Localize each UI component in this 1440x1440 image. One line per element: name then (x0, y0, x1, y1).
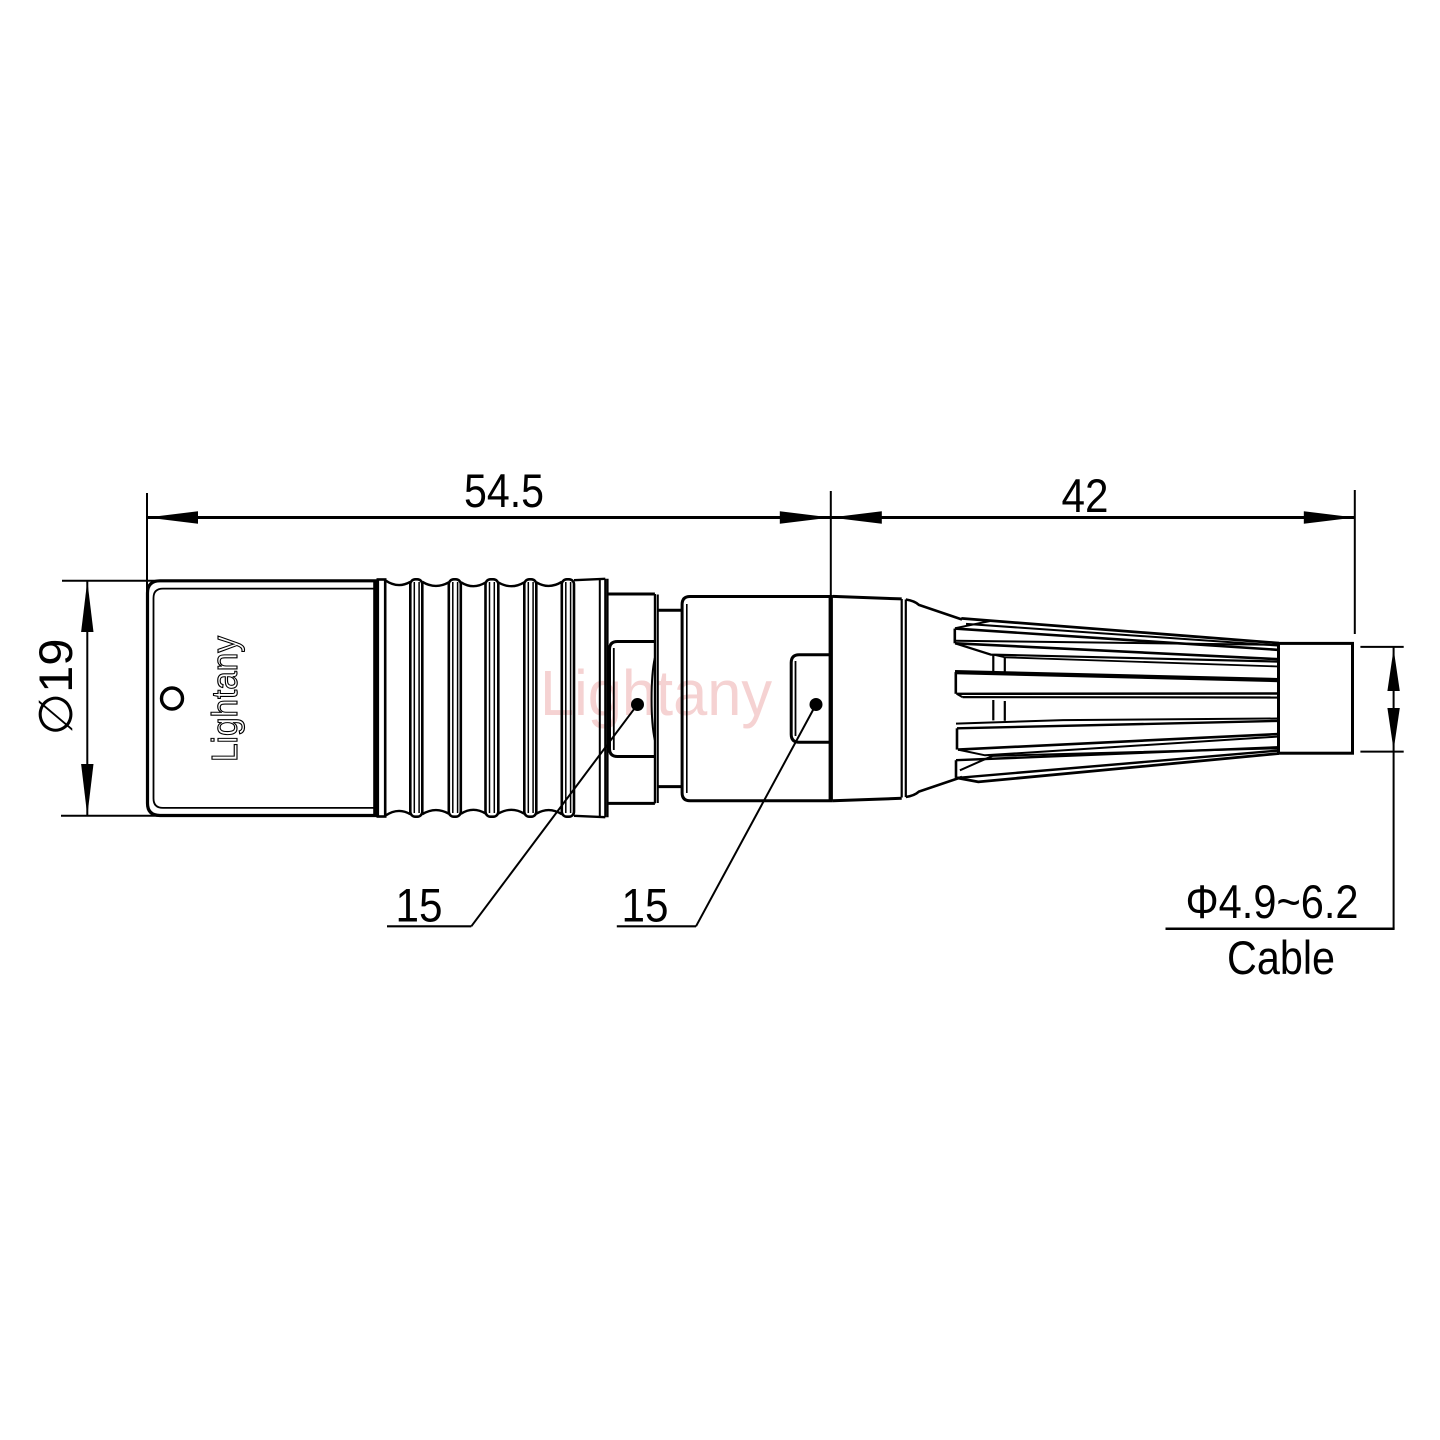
svg-text:Φ4.9~6.2: Φ4.9~6.2 (1186, 875, 1359, 928)
svg-text:15: 15 (396, 879, 443, 932)
svg-text:42: 42 (1062, 469, 1109, 522)
svg-text:Lightany: Lightany (204, 635, 245, 762)
svg-text:54.5: 54.5 (464, 464, 544, 517)
svg-text:∅19: ∅19 (29, 639, 82, 736)
svg-text:15: 15 (622, 879, 669, 932)
svg-text:Cable: Cable (1227, 931, 1335, 984)
